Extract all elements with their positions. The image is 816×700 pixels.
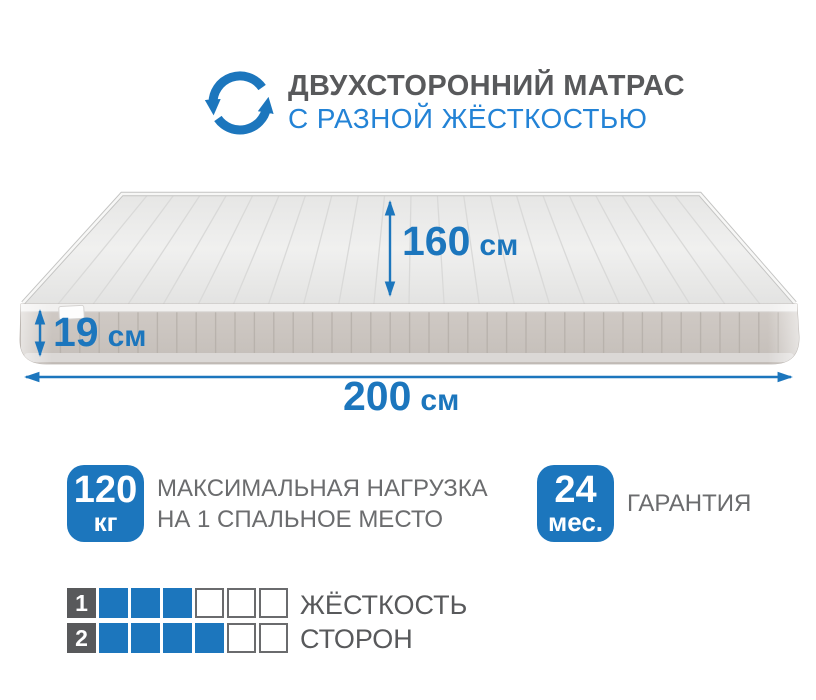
width-dimension-label: 160см — [402, 221, 518, 262]
firmness-label-line1: ЖЁСТКОСТЬ — [300, 588, 467, 622]
firmness-cell-empty — [227, 588, 256, 618]
max-load-label-line2: НА 1 СПАЛЬНОЕ МЕСТО — [157, 504, 488, 535]
height-value: 19 — [53, 309, 99, 355]
length-dimension-label: 200см — [343, 376, 459, 417]
max-load-value: 120 — [74, 471, 137, 509]
warranty-unit: мес. — [548, 509, 603, 536]
max-load-label: МАКСИМАЛЬНАЯ НАГРУЗКА НА 1 СПАЛЬНОЕ МЕСТ… — [157, 473, 488, 535]
firmness-cell-filled — [163, 588, 192, 618]
firmness-cell-filled — [131, 588, 160, 618]
length-value: 200 — [343, 373, 411, 419]
firmness-side-number: 1 — [67, 588, 96, 618]
height-dimension-label: 19см — [53, 312, 147, 353]
firmness-cell-empty — [259, 588, 288, 618]
firmness-label-line2: СТОРОН — [300, 622, 467, 656]
firmness-row-side-2: 2 — [67, 623, 288, 653]
max-load-badge: 120 кг — [67, 465, 144, 542]
firmness-cell-filled — [131, 623, 160, 653]
firmness-row-side-1: 1 — [67, 588, 288, 618]
firmness-cell-empty — [195, 588, 224, 618]
width-value: 160 — [402, 218, 470, 264]
firmness-cell-filled — [163, 623, 192, 653]
width-unit: см — [479, 229, 518, 262]
max-load-label-line1: МАКСИМАЛЬНАЯ НАГРУЗКА — [157, 473, 488, 504]
length-unit: см — [420, 384, 459, 417]
warranty-value: 24 — [554, 471, 596, 509]
firmness-cell-filled — [99, 623, 128, 653]
firmness-label: ЖЁСТКОСТЬ СТОРОН — [300, 588, 467, 656]
mattress-infographic: ДВУХСТОРОННИЙ МАТРАС С РАЗНОЙ ЖЁСТКОСТЬЮ — [0, 0, 816, 700]
firmness-cell-filled — [195, 623, 224, 653]
warranty-label: ГАРАНТИЯ — [627, 465, 751, 542]
firmness-cell-empty — [259, 623, 288, 653]
firmness-cell-filled — [99, 588, 128, 618]
firmness-cell-empty — [227, 623, 256, 653]
warranty-badge: 24 мес. — [537, 465, 614, 542]
firmness-scale: 12 — [67, 588, 288, 658]
max-load-unit: кг — [94, 509, 118, 536]
firmness-side-number: 2 — [67, 623, 96, 653]
height-unit: см — [108, 320, 147, 353]
